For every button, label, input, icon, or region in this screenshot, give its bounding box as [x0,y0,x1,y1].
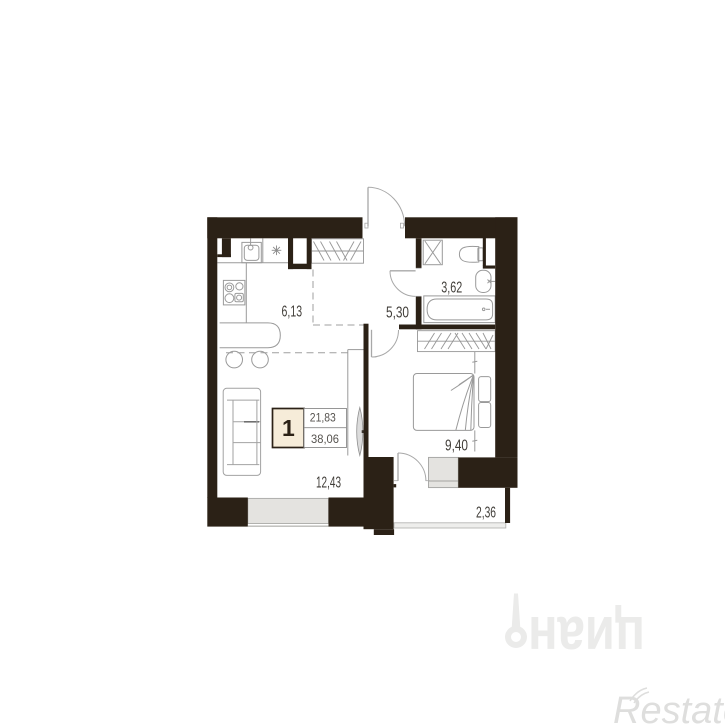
svg-text:6,13: 6,13 [282,304,303,321]
svg-text:38,06: 38,06 [311,432,339,446]
svg-text:12,43: 12,43 [316,475,341,492]
svg-text:2,36: 2,36 [476,504,496,521]
svg-text:Restate: Restate [613,690,725,725]
svg-text:циан: циан [528,604,645,671]
svg-text:9,40: 9,40 [445,437,468,454]
svg-text:21,83: 21,83 [310,411,336,425]
svg-text:5,30: 5,30 [386,305,409,322]
svg-text:3,62: 3,62 [441,280,462,297]
svg-text:1: 1 [282,415,295,441]
